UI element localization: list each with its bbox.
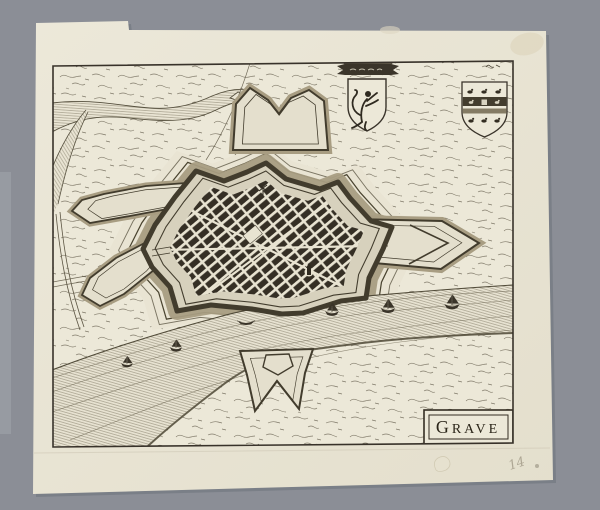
lower-band [463, 109, 507, 114]
title-cartouche: GRAVE [424, 410, 513, 444]
plate-content: GRAVE [50, 58, 516, 450]
map-scan: GRAVE 14 [0, 0, 600, 510]
edge-smudge [380, 26, 400, 34]
foxing-stain [434, 456, 450, 471]
ink-dot [535, 464, 539, 468]
adjacent-sheet-edge [0, 172, 11, 434]
engraving-svg: GRAVE 14 [0, 0, 600, 510]
